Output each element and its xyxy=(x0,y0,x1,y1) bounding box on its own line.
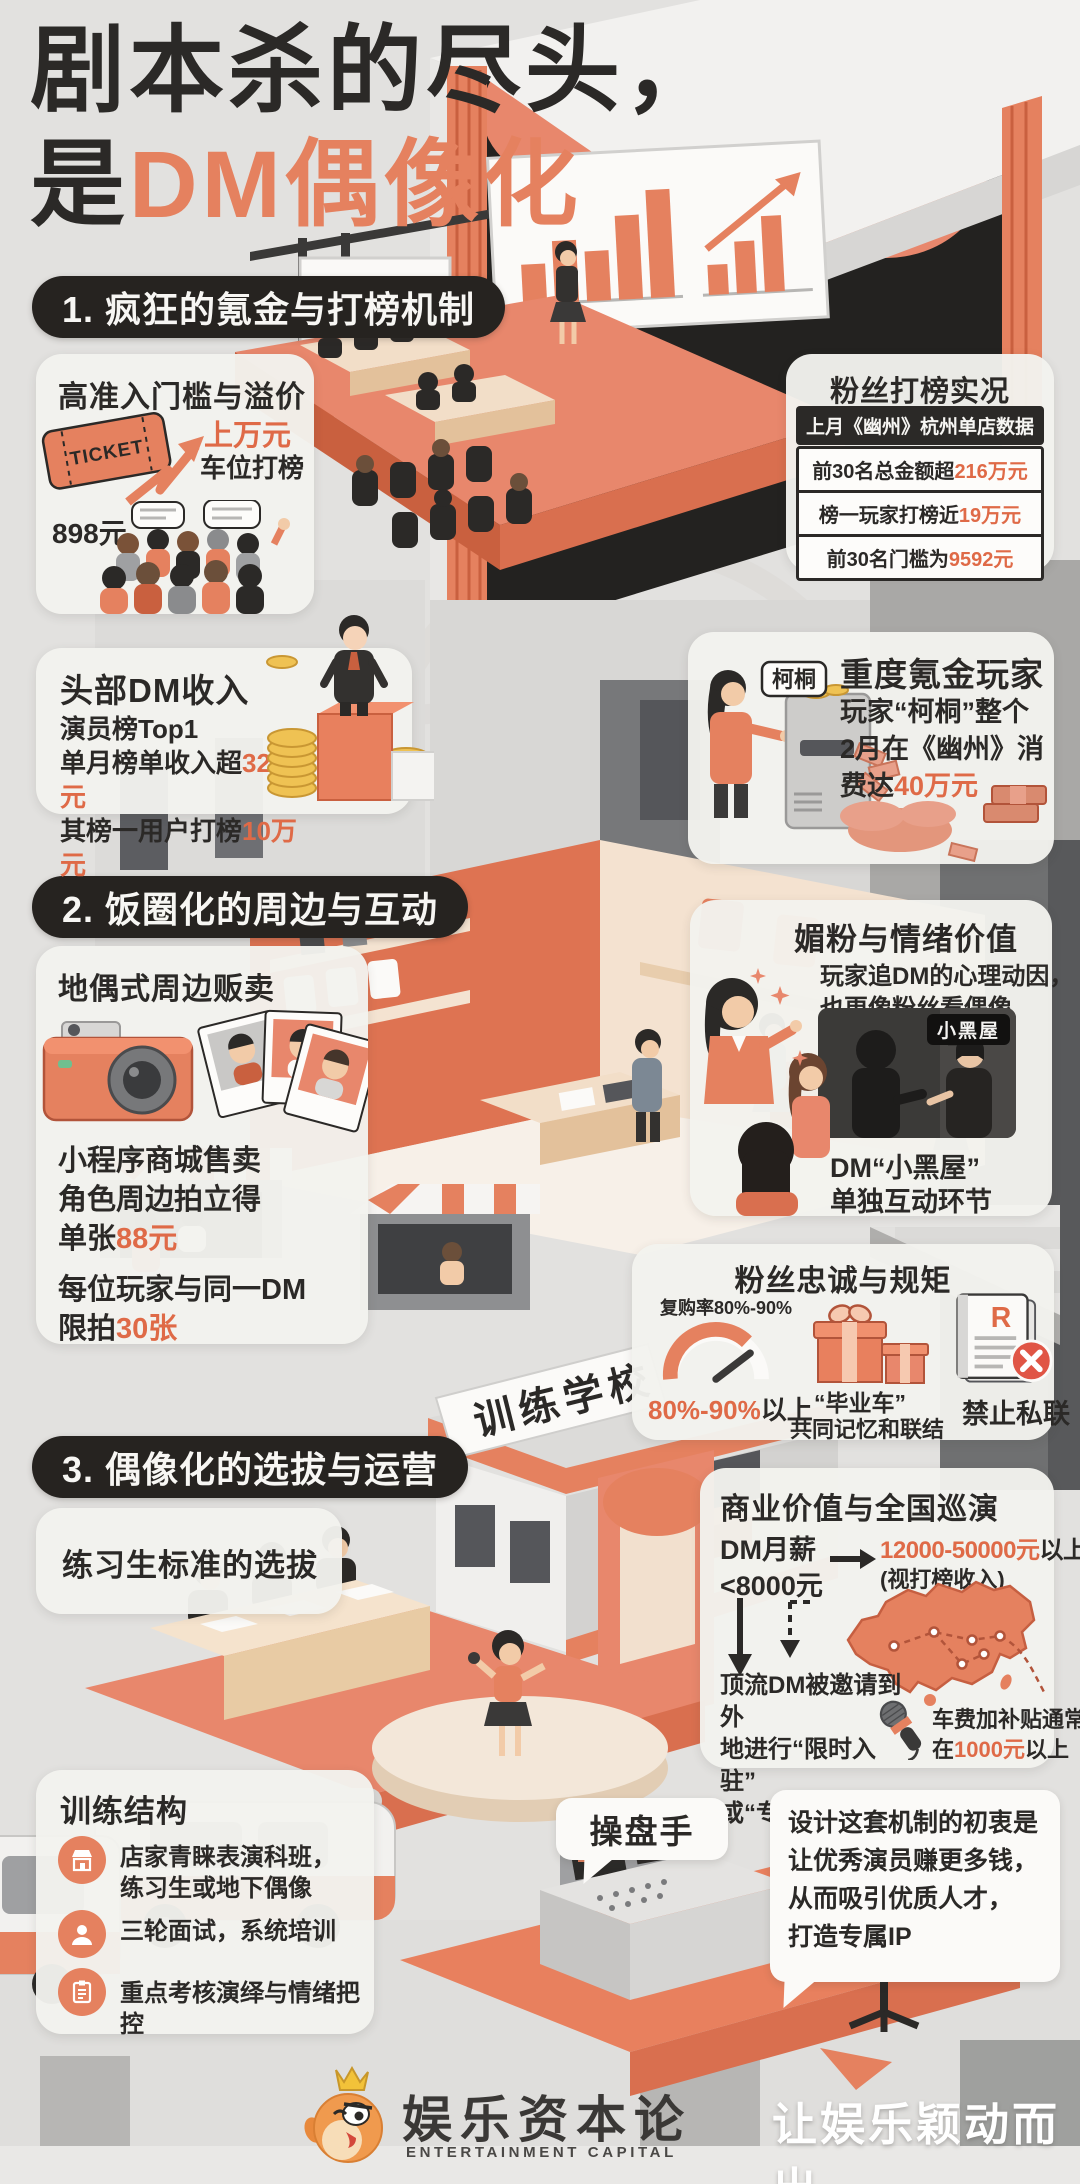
dm-income-line2: 单月榜单收入超 xyxy=(60,748,242,778)
operator-quote-bubble: 设计这套机制的初衷是 让优秀演员赚更多钱， 从而吸引优质人才， 打造专属IP xyxy=(770,1790,1060,1982)
training-title: 训练结构 xyxy=(60,1786,374,1831)
contract-icon: R xyxy=(950,1292,1054,1388)
fee-suffix: 以上 xyxy=(1025,1737,1069,1762)
training-item3-line1: 重点考核演绎与情绪把控 xyxy=(120,1978,374,2040)
gift-caption2: 共同记忆和联结 xyxy=(790,1412,944,1444)
card-whale-spender: 柯桐 重度氪金玩家 玩家“柯桐”整个 2月在《幽州》消 费达40万元 xyxy=(688,632,1054,864)
training-item1-line1: 店家青睐表演科班， xyxy=(120,1842,336,1873)
invite-line2: 地进行“限时入驻” xyxy=(720,1736,876,1795)
table-row: 榜一玩家打榜近19万元 xyxy=(799,490,1041,534)
commercial-title: 商业价值与全国巡演 xyxy=(720,1484,1054,1528)
contract-letter: R xyxy=(991,1302,1011,1334)
row-value: 216万元 xyxy=(954,461,1027,483)
selection-title: 练习生标准的选拔 xyxy=(62,1540,342,1585)
dark-room-image: 小黑屋 xyxy=(818,1008,1016,1138)
training-item-text: 店家青睐表演科班， 练习生或地下偶像 xyxy=(120,1836,336,1904)
whale-line3: 费达 xyxy=(840,771,894,801)
fans-illustration xyxy=(680,934,830,1216)
operator-label: 操盘手 xyxy=(590,1805,695,1853)
dm-income-line1: 演员榜Top1 xyxy=(60,714,198,744)
title-line-2: 是DM偶像化 xyxy=(30,128,723,242)
infographic-canvas: 训练学校 xyxy=(0,0,1080,2184)
quote-line3: 从而吸引优质人才， xyxy=(788,1880,1042,1918)
ban-x-icon xyxy=(1011,1341,1051,1381)
fan-ranking-table: 前30名总金额超216万元 榜一玩家打榜近19万元 前30名门槛为9592元 xyxy=(796,446,1044,581)
card-training-structure: 训练结构 店家青睐表演科班， 练习生或地下偶像 三轮面试，系统培训 重点考核演 xyxy=(36,1770,374,2034)
card-entry-threshold: 高准入门槛与溢价 TICKET 上万元 车位打榜 898元 xyxy=(36,354,314,614)
dm-income-line3: 其榜一用户打榜 xyxy=(60,816,242,846)
camera-icon xyxy=(44,1022,192,1120)
table-row: 前30名总金额超216万元 xyxy=(799,449,1041,490)
row-label: 前30名门槛为 xyxy=(827,549,949,571)
ban-caption: 禁止私联 xyxy=(962,1392,1070,1431)
card-fan-ranking: 粉丝打榜实况 上月《幽州》杭州单店数据 前30名总金额超216万元 榜一玩家打榜… xyxy=(786,354,1054,572)
mic-icon xyxy=(872,1696,934,1760)
quote-line2: 让优秀演员赚更多钱， xyxy=(788,1842,1042,1880)
emotion-line1: 玩家追DM的心理动因， xyxy=(820,956,1073,991)
training-item: 店家青睐表演科班， 练习生或地下偶像 xyxy=(58,1836,336,1904)
emotion-title: 媚粉与情绪价值 xyxy=(794,914,1052,959)
whale-name-tag: 柯桐 xyxy=(772,667,816,692)
title-line2-accent: DM偶像化 xyxy=(129,132,582,238)
whale-line2: 2月在《幽州》消 xyxy=(840,734,1044,764)
footer-logo-en: ENTERTAINMENT CAPITAL xyxy=(406,2144,677,2161)
card-emotional-value: 媚粉与情绪价值 玩家追DM的心理动因， 也更像粉丝看偶像 小黑屋 DM“小黑屋”… xyxy=(690,900,1052,1216)
footer-logo-cn: 娱乐资本论 xyxy=(402,2080,692,2152)
coins-podium-illustration xyxy=(254,582,434,814)
salary-range: 12000-50000元以上 xyxy=(880,1530,1080,1565)
section-2-header: 2. 饭圈化的周边与互动 xyxy=(32,876,468,938)
person-icon xyxy=(58,1910,106,1958)
title-line-1: 剧本杀的尽头， xyxy=(30,14,723,128)
merch-line5: 限拍 xyxy=(58,1313,116,1345)
merch-line5-value: 30张 xyxy=(116,1313,177,1345)
card-trainee-selection: 练习生标准的选拔 xyxy=(36,1508,342,1614)
title-line2-black: 是 xyxy=(30,132,129,238)
section-3-label: 3. 偶像化的选拔与运营 xyxy=(62,1441,438,1493)
card-loyalty-rules: 粉丝忠诚与规矩 复购率80%-90% 80%-90%以上 “毕业车” 共同记忆和… xyxy=(632,1244,1054,1440)
fee-line2: 在1000元以上 xyxy=(932,1732,1069,1764)
fan-ranking-title: 粉丝打榜实况 xyxy=(786,368,1054,410)
merch-line2: 角色周边拍立得 xyxy=(58,1184,261,1216)
row-label: 榜一玩家打榜近 xyxy=(819,505,959,527)
merch-line3-value: 88元 xyxy=(116,1223,177,1255)
gauge-icon xyxy=(646,1314,786,1384)
emotion-caption2: 单独互动环节 xyxy=(830,1180,992,1219)
whale-line3-value: 40万元 xyxy=(894,771,978,801)
row-value: 19万元 xyxy=(959,505,1021,527)
salary-range-number: 12000-50000元 xyxy=(880,1537,1039,1564)
whale-line1: 玩家“柯桐”整个 xyxy=(840,697,1029,727)
entry-peak-sub: 车位打榜 xyxy=(200,448,304,485)
dark-room-badge: 小黑屋 xyxy=(927,1014,1010,1045)
row-value: 9592元 xyxy=(949,549,1014,571)
gauge-value: 80%-90%以上 xyxy=(648,1390,813,1427)
training-item: 重点考核演绎与情绪把控 xyxy=(58,1968,374,2040)
row-label: 前30名总金额超 xyxy=(812,461,954,483)
storefront-icon xyxy=(58,1836,106,1884)
training-item-text: 重点考核演绎与情绪把控 xyxy=(120,1968,374,2040)
camera-polaroids-illustration xyxy=(36,1004,368,1136)
card-commercial-value: 商业价值与全国巡演 DM月薪 <8000元 12000-50000元以上 (视打… xyxy=(700,1468,1054,1768)
table-row: 前30名门槛为9592元 xyxy=(799,534,1041,578)
salary-line1: DM月薪 xyxy=(720,1528,816,1567)
card-dm-income: 头部DM收入 演员榜Top1 单月榜单收入超32万元 其榜一用户打榜10万元 xyxy=(36,648,412,814)
gauge-number: 80%-90% xyxy=(648,1395,761,1425)
quote-line4: 打造专属IP xyxy=(788,1918,1042,1956)
operator-label-bubble: 操盘手 xyxy=(556,1798,728,1860)
merch-line3: 单张 xyxy=(58,1223,116,1255)
arrow-right-icon xyxy=(828,1544,878,1574)
gift-icon xyxy=(808,1298,932,1386)
training-item-text: 三轮面试，系统培训 xyxy=(120,1910,336,1947)
fan-ranking-subheader: 上月《幽州》杭州单店数据 xyxy=(796,406,1044,445)
merch-title: 地偶式周边贩卖 xyxy=(58,964,368,1008)
clipboard-icon xyxy=(58,1968,106,2016)
card-merch-sales: 地偶式周边贩卖 xyxy=(36,946,368,1344)
training-item2-line1: 三轮面试，系统培训 xyxy=(120,1916,336,1947)
mascot-logo xyxy=(300,2064,396,2172)
section-1-header: 1. 疯狂的氪金与打榜机制 xyxy=(32,276,505,338)
merch-lines: 小程序商城售卖 角色周边拍立得 单张88元 每位玩家与同一DM 限拍30张 xyxy=(58,1142,348,1349)
training-item1-line2: 练习生或地下偶像 xyxy=(120,1873,336,1904)
section-3-header: 3. 偶像化的选拔与运营 xyxy=(32,1436,468,1498)
training-item: 三轮面试，系统培训 xyxy=(58,1910,336,1958)
whale-lines: 玩家“柯桐”整个 2月在《幽州》消 费达40万元 xyxy=(840,694,1046,805)
merch-line4: 每位玩家与同一DM xyxy=(58,1274,306,1306)
fee-number: 1000元 xyxy=(954,1737,1025,1762)
salary-range-suffix: 以上 xyxy=(1039,1537,1080,1564)
footer-watermark: 让娱乐颖动而出 xyxy=(772,2088,1080,2184)
section-2-label: 2. 饭圈化的周边与互动 xyxy=(62,881,438,933)
fee-line1: 车费加补贴通常 xyxy=(932,1702,1080,1734)
whale-title: 重度氪金玩家 xyxy=(840,648,1044,696)
quote-line1: 设计这套机制的初衷是 xyxy=(788,1804,1042,1842)
fee-pre: 在 xyxy=(932,1737,954,1762)
section-1-label: 1. 疯狂的氪金与打榜机制 xyxy=(62,281,475,333)
merch-line1: 小程序商城售卖 xyxy=(58,1145,261,1177)
page-title: 剧本杀的尽头， 是DM偶像化 xyxy=(30,14,723,242)
